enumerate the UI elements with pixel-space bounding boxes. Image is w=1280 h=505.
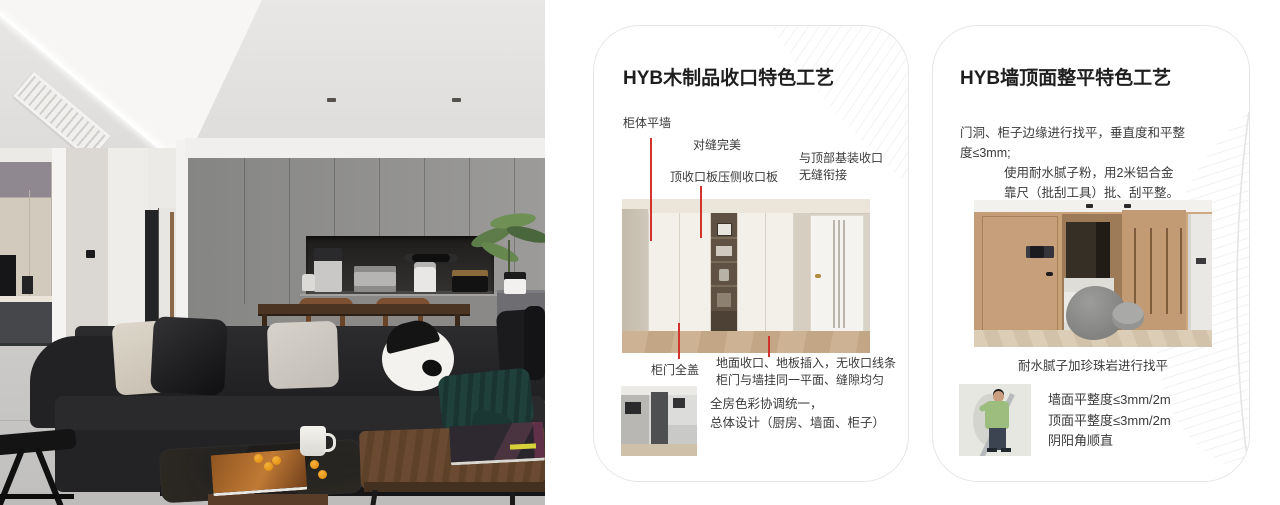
c-groove <box>1150 228 1152 314</box>
card-wall-leveling: HYB墙顶面整平特色工艺 门洞、柜子边缘进行找平，垂直度和平整 度≤3mm; 使… <box>932 25 1250 482</box>
cup-rack <box>354 266 396 292</box>
c-groove <box>1134 228 1136 314</box>
card2-title: HYB墙顶面整平特色工艺 <box>960 63 1171 90</box>
c-groove <box>1180 228 1182 314</box>
door-trim-line <box>838 220 840 328</box>
dining-table <box>258 304 470 314</box>
th-tv-dark <box>625 402 641 414</box>
living-room-photo <box>0 0 545 505</box>
shelf-line <box>711 237 737 239</box>
shelf-item <box>716 246 732 256</box>
w-open-shelf <box>711 213 737 331</box>
th-cabinet-column <box>651 392 668 448</box>
c-door-handle <box>1046 272 1053 276</box>
leader-line-cabinet-wall <box>650 138 652 241</box>
th-floor <box>621 444 697 456</box>
w-door-seam <box>765 213 766 331</box>
leader-line-top-board <box>700 186 702 238</box>
card1-title: HYB木制品收口特色工艺 <box>623 63 834 90</box>
annotation-top-board: 顶收口板压侧收口板 <box>670 168 778 185</box>
th-appliance <box>673 398 685 408</box>
wood-coffee-table <box>360 420 545 505</box>
doorway-dark <box>145 210 158 336</box>
table-leg-metal <box>510 492 515 505</box>
annotation-top-joint-line2: 无缝衔接 <box>799 167 883 184</box>
wall-top-strip <box>185 138 545 160</box>
closet-illustration <box>974 200 1212 347</box>
c-hanging-clothes <box>1066 222 1110 278</box>
orange-fruit <box>310 460 319 469</box>
page: HYB木制品收口特色工艺 柜体平墙 对缝完美 顶收口板压侧收口板 与顶部基装收口… <box>0 0 1280 505</box>
annotation-seam: 对缝完美 <box>693 136 741 153</box>
card-wood-finish: HYB木制品收口特色工艺 柜体平墙 对缝完美 顶收口板压侧收口板 与顶部基装收口… <box>593 25 909 482</box>
paragraph-leveling: 门洞、柜子边缘进行找平，垂直度和平整 度≤3mm; <box>960 123 1185 163</box>
kettle <box>302 274 315 291</box>
c-control-panel <box>1026 246 1054 258</box>
w-left-wall <box>622 209 648 331</box>
interior-thumbnail <box>621 386 697 456</box>
w-door-seam <box>679 213 680 331</box>
annotation-cabinet-wall: 柜体平墙 <box>623 114 671 131</box>
wall-column <box>52 148 66 353</box>
door-knob <box>815 274 821 278</box>
capsule-machine <box>414 262 436 292</box>
metric-ceiling-flatness: 顶面平整度≤3mm/2m <box>1048 411 1171 432</box>
pillow-black-corner <box>524 306 545 380</box>
plant <box>468 212 545 296</box>
orange-fruit <box>254 454 263 463</box>
table-leg-metal <box>367 490 378 505</box>
door-trim-line <box>833 220 835 328</box>
paragraph-putty-line1: 使用耐水腻子粉，用2米铝合金 <box>1004 163 1179 183</box>
paragraph-leveling-line2: 度≤3mm; <box>960 143 1185 163</box>
espresso-machine <box>314 248 342 292</box>
wk-shoe <box>1001 448 1011 452</box>
c-downlight <box>1124 204 1131 208</box>
downlight <box>327 98 336 102</box>
wk-shoe <box>987 448 997 452</box>
metric-wall-flatness: 墙面平整度≤3mm/2m <box>1048 390 1171 411</box>
worker-thumbnail <box>959 384 1031 456</box>
summary-text: 全房色彩协调统一， 总体设计（厨房、墙面、柜子） <box>710 395 885 432</box>
c-ottoman <box>1112 302 1144 330</box>
w-floor <box>622 331 870 353</box>
summary-line2: 总体设计（厨房、墙面、柜子） <box>710 414 885 433</box>
wardrobe-illustration <box>622 199 870 353</box>
metrics-list: 墙面平整度≤3mm/2m 顶面平整度≤3mm/2m 阴阳角顺直 <box>1048 390 1171 452</box>
kitchen-appliance <box>22 276 33 294</box>
shelf-item <box>717 223 732 236</box>
kitchen-lower-cabinets <box>0 302 58 348</box>
plant-leaf <box>505 223 545 246</box>
w-side-wall <box>794 213 810 331</box>
annotation-floor-line1: 地面收口、地板插入，无收口线条 <box>716 355 896 372</box>
shelf-line <box>711 285 737 287</box>
plant-pot <box>504 272 526 294</box>
wood-table-edge <box>364 482 545 492</box>
orange-fruit <box>318 470 327 479</box>
annotation-top-joint: 与顶部基装收口 无缝衔接 <box>799 150 883 184</box>
c-downlight <box>1086 204 1093 208</box>
summary-line1: 全房色彩协调统一， <box>710 395 885 414</box>
pillow-black-leather <box>150 316 228 396</box>
paragraph-leveling-line1: 门洞、柜子边缘进行找平，垂直度和平整 <box>960 123 1185 143</box>
coffee-niche <box>306 236 494 294</box>
wk-pants <box>989 428 1006 450</box>
plant-stem <box>508 240 510 276</box>
white-mug <box>300 426 326 456</box>
leader-line-floor-joint <box>768 336 770 357</box>
stool-crossbar <box>0 494 74 499</box>
image-caption: 耐水腻子加珍珠岩进行找平 <box>974 355 1212 374</box>
pillow-gray <box>267 321 339 389</box>
annotation-floor-joint: 地面收口、地板插入，无收口线条 柜门与墙挂同一平面、缝隙均匀 <box>716 355 896 388</box>
c-white-door <box>1188 214 1212 336</box>
stone-table-base <box>208 494 328 505</box>
folding-stool <box>0 420 90 505</box>
metric-corners: 阴阳角顺直 <box>1048 431 1171 452</box>
annotation-top-joint-line1: 与顶部基装收口 <box>799 150 883 167</box>
orange-fruit <box>264 462 273 471</box>
c-door-label <box>1196 258 1206 264</box>
shelf-item <box>719 269 729 281</box>
paragraph-putty: 使用耐水腻子粉，用2米铝合金 靠尺（批刮工具）批、刮平整。 <box>1004 163 1179 203</box>
c-groove <box>1166 228 1168 314</box>
shelf-line <box>711 261 737 263</box>
door-wood-edge <box>170 212 174 334</box>
leader-line-door-cover <box>678 323 680 359</box>
stone-coffee-table <box>160 436 370 505</box>
power-strip <box>404 254 458 262</box>
light-switch <box>86 250 95 258</box>
w-interior-door <box>810 215 864 333</box>
w-ceiling <box>622 199 870 213</box>
orange-fruit <box>272 456 281 465</box>
shelf-item <box>717 293 731 307</box>
door-trim-line <box>843 220 845 328</box>
annotation-floor-line2: 柜门与墙挂同一平面、缝隙均匀 <box>716 372 896 389</box>
c-left-door <box>982 216 1058 336</box>
downlight <box>452 98 461 102</box>
plant-leaf <box>479 238 520 265</box>
coffee-machine-black <box>0 255 16 299</box>
annotation-door-cover: 柜门全盖 <box>651 361 699 378</box>
